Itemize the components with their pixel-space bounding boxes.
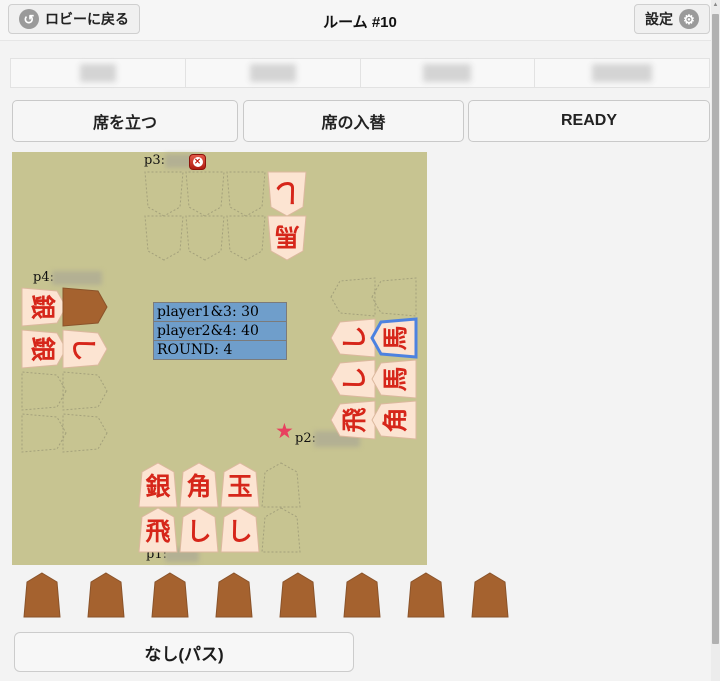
piece-角[interactable]: 角: [178, 462, 220, 508]
empty-slot: [225, 171, 267, 217]
piece-し[interactable]: し: [219, 507, 261, 553]
svg-text:角: 角: [381, 407, 410, 432]
seat-2[interactable]: [186, 59, 361, 87]
empty-slot: [23, 410, 65, 456]
svg-text:し: し: [274, 178, 299, 207]
hand-piece[interactable]: [342, 572, 382, 618]
player-label-p3: p3:: [144, 153, 165, 168]
piece-し[interactable]: し: [332, 356, 374, 402]
svg-text:し: し: [340, 325, 369, 350]
seat-4-name-blurred: [592, 64, 652, 82]
seat-3[interactable]: [361, 59, 536, 87]
hand-piece[interactable]: [470, 572, 510, 618]
back-arrow-icon: ↺: [19, 9, 39, 29]
empty-slot: [143, 171, 185, 217]
empty-slot: [64, 410, 106, 456]
piece-玉[interactable]: 玉: [219, 462, 261, 508]
piece-し[interactable]: し: [266, 171, 308, 217]
svg-text:し: し: [186, 517, 211, 546]
game-board: p3: ✕ p4: ★ p2: p1: player1&3: 30 player…: [12, 152, 427, 565]
player-label-p4: p4:: [33, 270, 54, 285]
seat-1[interactable]: [11, 59, 186, 87]
empty-slot: [143, 215, 185, 261]
pass-button[interactable]: なし(パス): [14, 632, 354, 672]
hand-row: [0, 572, 720, 622]
piece-銀[interactable]: 銀: [23, 326, 65, 372]
back-to-lobby-button[interactable]: ↺ ロビーに戻る: [8, 4, 140, 34]
empty-slot: [373, 274, 415, 320]
stand-up-button[interactable]: 席を立つ: [12, 100, 238, 142]
seats-row: [10, 58, 710, 88]
svg-text:銀: 銀: [28, 336, 57, 361]
piece-し[interactable]: し: [64, 326, 106, 372]
empty-slot: [64, 368, 106, 414]
gear-icon: ⚙: [679, 9, 699, 29]
seat-3-name-blurred: [423, 64, 471, 82]
piece-角[interactable]: 角: [373, 397, 415, 443]
empty-slot: [225, 215, 267, 261]
piece-飛[interactable]: 飛: [332, 397, 374, 443]
close-icon: ✕: [193, 157, 203, 167]
score-team-2-4: player2&4: 40: [154, 322, 286, 341]
settings-label: 設定: [645, 9, 673, 29]
player-name-p4-blurred: [52, 271, 102, 285]
empty-slot: [23, 368, 65, 414]
ready-button[interactable]: READY: [468, 100, 710, 142]
piece-飛[interactable]: 飛: [137, 507, 179, 553]
piece-し[interactable]: し: [332, 315, 374, 361]
hand-piece[interactable]: [406, 572, 446, 618]
piece-銀[interactable]: 銀: [137, 462, 179, 508]
svg-text:馬: 馬: [381, 325, 410, 350]
piece-face-down[interactable]: [64, 284, 106, 330]
empty-slot: [260, 507, 302, 553]
scrollbar-thumb[interactable]: [712, 14, 719, 644]
seat-1-name-blurred: [80, 64, 116, 82]
kick-player-button[interactable]: ✕: [189, 154, 206, 170]
scroll-up-arrow-icon[interactable]: ▲: [711, 2, 720, 8]
svg-text:し: し: [340, 366, 369, 391]
svg-text:飛: 飛: [340, 407, 369, 432]
back-to-lobby-label: ロビーに戻る: [45, 9, 129, 29]
hand-piece[interactable]: [150, 572, 190, 618]
score-team-1-3: player1&3: 30: [154, 303, 286, 322]
empty-slot: [184, 171, 226, 217]
seat-4[interactable]: [535, 59, 709, 87]
svg-text:し: し: [227, 517, 252, 546]
piece-馬[interactable]: 馬: [373, 356, 415, 402]
svg-text:し: し: [69, 336, 98, 361]
top-bar: ルーム #10 ↺ ロビーに戻る 設定 ⚙: [0, 0, 720, 41]
player-label-p2: p2:: [295, 431, 316, 446]
svg-text:角: 角: [186, 472, 211, 501]
hand-piece[interactable]: [22, 572, 62, 618]
empty-slot: [332, 274, 374, 320]
hand-piece[interactable]: [278, 572, 318, 618]
piece-馬-selected[interactable]: 馬: [373, 315, 415, 361]
svg-text:馬: 馬: [274, 222, 299, 251]
piece-馬[interactable]: 馬: [266, 215, 308, 261]
svg-text:馬: 馬: [381, 366, 410, 391]
turn-star-icon: ★: [275, 422, 294, 442]
svg-text:銀: 銀: [145, 472, 170, 501]
empty-slot: [184, 215, 226, 261]
svg-text:飛: 飛: [145, 517, 170, 546]
svg-text:玉: 玉: [227, 472, 252, 501]
hand-piece[interactable]: [86, 572, 126, 618]
round-indicator: ROUND: 4: [154, 341, 286, 359]
hand-piece[interactable]: [214, 572, 254, 618]
score-panel: player1&3: 30 player2&4: 40 ROUND: 4: [153, 302, 287, 360]
empty-slot: [260, 462, 302, 508]
piece-し[interactable]: し: [178, 507, 220, 553]
svg-text:銀: 銀: [28, 294, 57, 319]
scrollbar[interactable]: ▲: [711, 0, 720, 681]
seat-2-name-blurred: [250, 64, 296, 82]
settings-button[interactable]: 設定 ⚙: [634, 4, 710, 34]
swap-seats-button[interactable]: 席の入替: [243, 100, 464, 142]
piece-銀[interactable]: 銀: [23, 284, 65, 330]
